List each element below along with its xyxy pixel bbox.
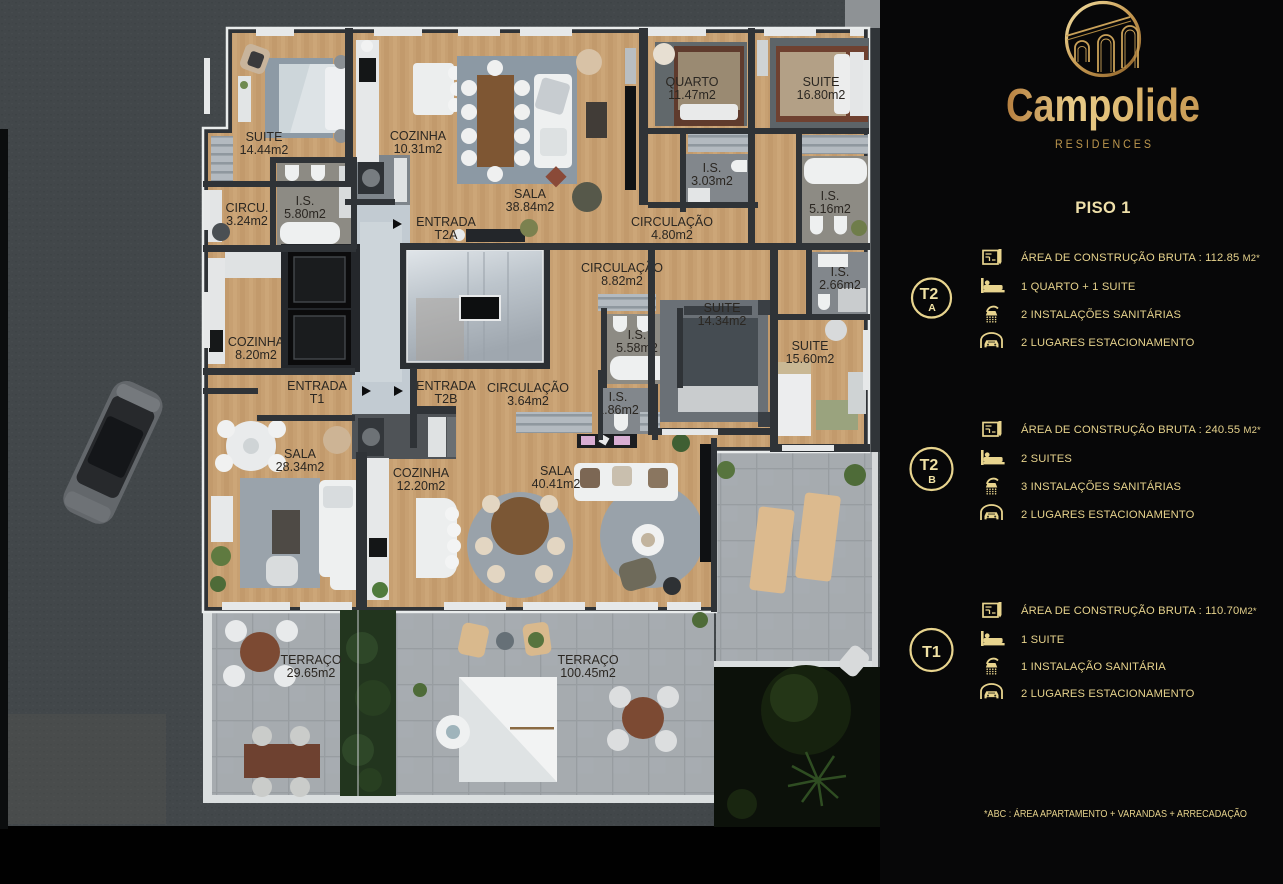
svg-text:14.44m2: 14.44m2 [240,143,289,157]
svg-text:ÁREA DE CONSTRUÇÃO BRUTA : 11: ÁREA DE CONSTRUÇÃO BRUTA : 112.85 M2* [1021,251,1260,264]
svg-text:38.84m2: 38.84m2 [506,200,555,214]
svg-text:SALA: SALA [540,464,573,478]
svg-text:2 INSTALAÇÕES SANITÁRIAS: 2 INSTALAÇÕES SANITÁRIAS [1021,308,1181,321]
svg-text:SALA: SALA [284,447,317,461]
svg-text:I.S.: I.S. [628,328,647,342]
svg-text:1 INSTALAÇÃO SANITÁRIA: 1 INSTALAÇÃO SANITÁRIA [1021,660,1166,673]
svg-text:B: B [928,474,936,486]
svg-text:I.S.: I.S. [609,390,628,404]
svg-text:10.31m2: 10.31m2 [394,142,443,156]
svg-text:1.86m2: 1.86m2 [597,403,639,417]
svg-text:Campolide: Campolide [1006,79,1200,131]
svg-text:COZINHA: COZINHA [393,466,450,480]
svg-text:5.16m2: 5.16m2 [809,202,851,216]
svg-text:12.20m2: 12.20m2 [397,479,446,493]
svg-text:100.45m2: 100.45m2 [560,666,616,680]
svg-text:T2: T2 [920,457,939,474]
svg-text:I.S.: I.S. [703,161,722,175]
svg-text:14.34m2: 14.34m2 [698,314,747,328]
svg-text:I.S.: I.S. [296,194,315,208]
svg-text:16.80m2: 16.80m2 [797,88,846,102]
svg-text:T1: T1 [310,392,325,406]
svg-text:1 QUARTO + 1 SUITE: 1 QUARTO + 1 SUITE [1021,281,1136,293]
svg-text:2 LUGARES ESTACIONAMENTO: 2 LUGARES ESTACIONAMENTO [1021,688,1195,700]
svg-text:3.03m2: 3.03m2 [691,174,733,188]
svg-text:3 INSTALAÇÕES SANITÁRIAS: 3 INSTALAÇÕES SANITÁRIAS [1021,480,1181,493]
svg-text:T2A: T2A [435,228,459,242]
svg-text:3.24m2: 3.24m2 [226,214,268,228]
svg-text:SUITE: SUITE [246,130,283,144]
svg-text:T1: T1 [922,644,941,661]
svg-text:2 SUITES: 2 SUITES [1021,453,1072,465]
svg-text:SALA: SALA [514,187,547,201]
svg-text:SUITE: SUITE [704,301,741,315]
svg-text:4.80m2: 4.80m2 [651,228,693,242]
svg-text:29.65m2: 29.65m2 [287,666,336,680]
svg-text:2 LUGARES ESTACIONAMENTO: 2 LUGARES ESTACIONAMENTO [1021,337,1195,349]
svg-text:SUITE: SUITE [792,339,829,353]
svg-text:3.64m2: 3.64m2 [507,394,549,408]
svg-text:I.S.: I.S. [831,265,850,279]
svg-text:11.47m2: 11.47m2 [668,88,716,102]
svg-text:2 LUGARES ESTACIONAMENTO: 2 LUGARES ESTACIONAMENTO [1021,509,1195,521]
svg-text:R E S I D E N C E S: R E S I D E N C E S [1055,137,1151,151]
svg-text:8.20m2: 8.20m2 [235,348,277,362]
svg-text:40.41m2: 40.41m2 [532,477,581,491]
svg-text:COZINHA: COZINHA [390,129,447,143]
svg-text:ENTRADA: ENTRADA [287,379,347,393]
svg-text:T2: T2 [920,286,939,303]
svg-text:COZINHA: COZINHA [228,335,285,349]
svg-text:*ABC : ÁREA APARTAMENTO + VAR: *ABC : ÁREA APARTAMENTO + VARANDAS + ARR… [984,807,1247,820]
svg-text:T2B: T2B [435,392,458,406]
svg-text:CIRCULAÇÃO: CIRCULAÇÃO [487,381,569,395]
svg-text:8.82m2: 8.82m2 [601,274,643,288]
svg-text:A: A [928,302,936,314]
svg-text:PISO 1: PISO 1 [1075,199,1131,217]
svg-text:TERRAÇO: TERRAÇO [557,653,618,667]
svg-text:ENTRADA: ENTRADA [416,215,476,229]
svg-text:ENTRADA: ENTRADA [416,379,476,393]
svg-text:28.34m2: 28.34m2 [276,460,325,474]
svg-text:CIRCU.: CIRCU. [225,201,268,215]
svg-text:2.66m2: 2.66m2 [819,278,861,292]
svg-text:1 SUITE: 1 SUITE [1021,634,1064,646]
svg-text:I.S.: I.S. [821,189,840,203]
svg-text:SUITE: SUITE [803,75,840,89]
svg-text:QUARTO: QUARTO [665,75,718,89]
svg-text:CIRCULAÇÃO: CIRCULAÇÃO [631,215,713,229]
svg-text:TERRAÇO: TERRAÇO [280,653,341,667]
svg-text:15.60m2: 15.60m2 [786,352,835,366]
svg-text:5.80m2: 5.80m2 [284,207,326,221]
svg-text:ÁREA DE CONSTRUÇÃO BRUTA : 11: ÁREA DE CONSTRUÇÃO BRUTA : 110.70M2* [1021,604,1257,617]
svg-text:ÁREA DE CONSTRUÇÃO BRUTA : 24: ÁREA DE CONSTRUÇÃO BRUTA : 240.55 M2* [1021,423,1261,436]
